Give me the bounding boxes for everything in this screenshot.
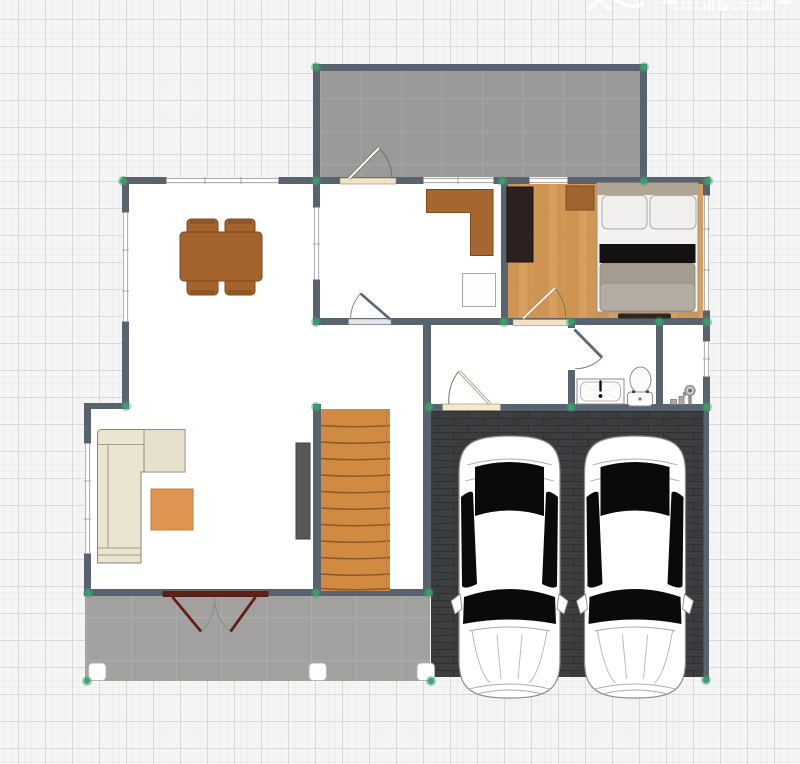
svg-text:LTE2: LTE2	[732, 1, 758, 13]
svg-text:LTE1: LTE1	[674, 1, 700, 13]
